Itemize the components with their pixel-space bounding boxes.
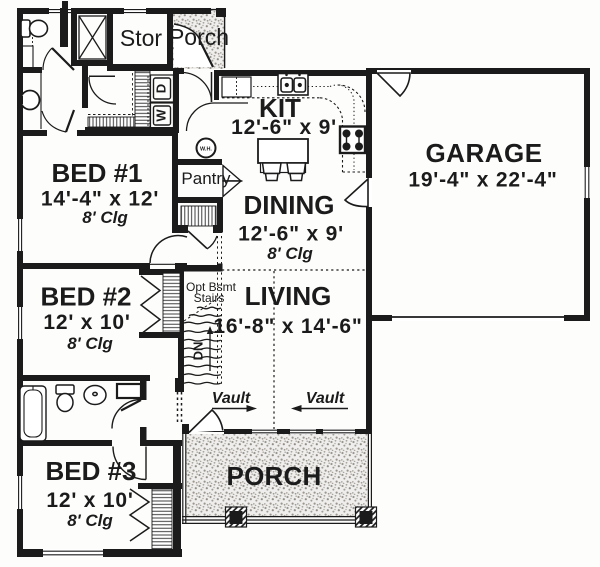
svg-text:D: D bbox=[153, 84, 168, 93]
svg-text:Porch: Porch bbox=[169, 24, 229, 50]
svg-text:8' Clg: 8' Clg bbox=[67, 334, 113, 353]
svg-text:12'-6" x 9': 12'-6" x 9' bbox=[238, 223, 344, 246]
svg-text:GARAGE: GARAGE bbox=[425, 138, 542, 168]
svg-text:Stairs: Stairs bbox=[194, 291, 225, 305]
svg-text:12'-6" x 9': 12'-6" x 9' bbox=[231, 116, 337, 139]
svg-text:12' x 10': 12' x 10' bbox=[43, 311, 130, 334]
svg-text:Vault: Vault bbox=[306, 390, 345, 407]
svg-text:W.H.: W.H. bbox=[200, 147, 212, 153]
svg-text:BED #1: BED #1 bbox=[51, 158, 142, 188]
svg-text:8' Clg: 8' Clg bbox=[67, 511, 113, 530]
svg-text:12' x 10': 12' x 10' bbox=[46, 489, 133, 512]
svg-text:BED #3: BED #3 bbox=[45, 456, 136, 486]
svg-text:LIVING: LIVING bbox=[245, 281, 332, 311]
svg-text:PORCH: PORCH bbox=[227, 461, 322, 491]
svg-text:19'-4" x 22'-4": 19'-4" x 22'-4" bbox=[408, 169, 557, 192]
svg-text:Stor: Stor bbox=[120, 25, 163, 51]
svg-text:16'-8" x 14'-6": 16'-8" x 14'-6" bbox=[213, 315, 362, 338]
svg-text:Vault: Vault bbox=[212, 390, 251, 407]
svg-text:8' Clg: 8' Clg bbox=[267, 244, 313, 263]
svg-text:DINING: DINING bbox=[244, 190, 335, 220]
svg-text:W: W bbox=[153, 109, 168, 122]
svg-text:BED #2: BED #2 bbox=[40, 282, 131, 312]
svg-text:Pantry: Pantry bbox=[181, 169, 231, 188]
svg-text:DN: DN bbox=[190, 342, 205, 361]
svg-text:8' Clg: 8' Clg bbox=[82, 208, 128, 227]
